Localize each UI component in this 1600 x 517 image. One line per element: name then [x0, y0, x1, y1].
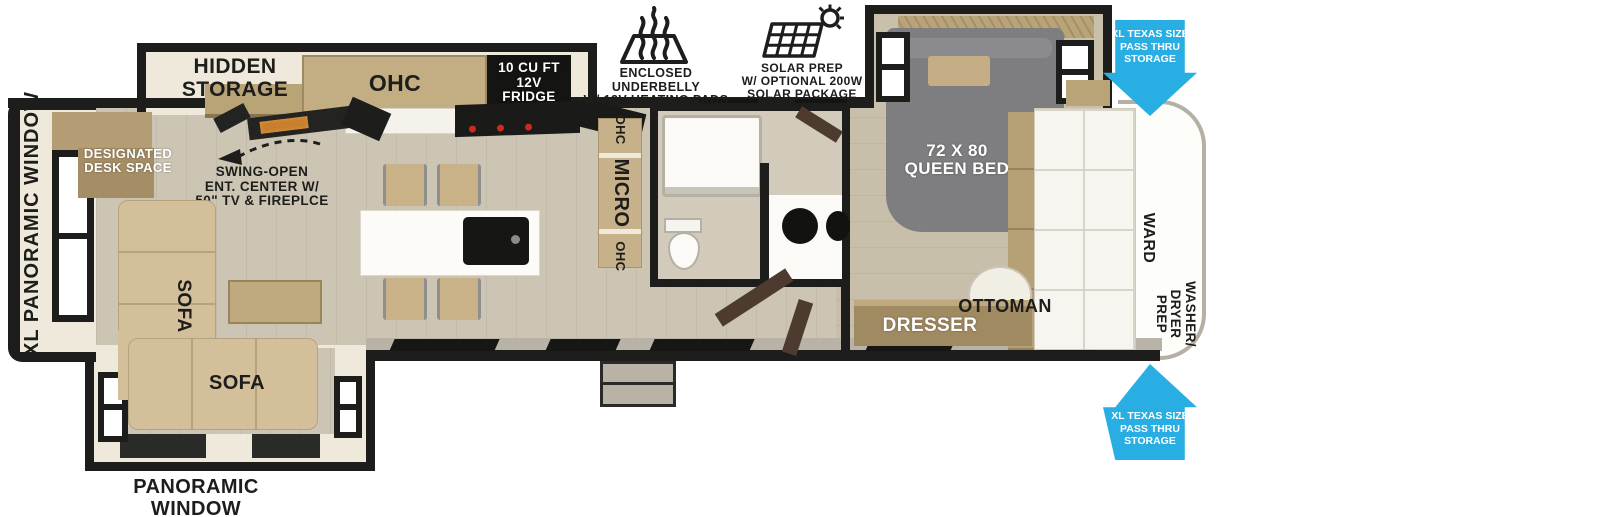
heating-pads-icon	[612, 6, 696, 68]
desk-label: DESIGNATED DESK SPACE	[68, 147, 188, 175]
micro-label: MICRO	[609, 159, 631, 228]
micro-strip-label: OHC MICRO OHC	[598, 118, 642, 268]
cooktop	[455, 101, 580, 137]
bedroom-partition-wall	[841, 283, 850, 353]
stool	[383, 164, 427, 206]
hidden-storage-label: HIDDEN STORAGE	[155, 56, 315, 101]
ohc-upper-label: OHC	[613, 115, 627, 145]
shower	[662, 115, 762, 197]
pass-thru-label: XL TEXAS SIZE	[1103, 28, 1197, 41]
underbelly-label: ENCLOSED UNDERBELLY W/ 12V HEATING PADS	[576, 67, 736, 108]
burner-knob	[525, 123, 532, 130]
vanity-sink	[782, 208, 818, 244]
window-slot	[545, 339, 620, 351]
vanity-sink	[826, 211, 850, 241]
sofa-label: SOFA	[171, 261, 193, 351]
queen-bed-label: 72 X 80 QUEEN BED	[897, 142, 1017, 179]
solar-prep-label: SOLAR PREP W/ OPTIONAL 200W SOLAR PACKAG…	[722, 62, 882, 102]
bedside-shelf	[1066, 80, 1110, 106]
entry-steps	[600, 361, 676, 407]
pass-thru-label: PASS THRU	[1103, 41, 1197, 54]
pass-thru-label: PASS THRU	[1103, 423, 1197, 436]
bed-cushion	[928, 56, 990, 86]
stool	[383, 278, 427, 320]
shower-threshold	[665, 187, 759, 194]
ottoman-label: OTTOMAN	[940, 297, 1070, 316]
window-slot	[649, 339, 754, 351]
toilet	[668, 232, 700, 270]
pillows	[898, 38, 1052, 58]
dresser-label: DRESSER	[870, 316, 990, 337]
burner-knob	[497, 124, 504, 131]
kitchen-island	[360, 210, 540, 276]
faucet	[511, 235, 520, 244]
sofa-seam	[119, 251, 215, 253]
sill-gap	[206, 434, 252, 458]
sofa-label: SOFA	[177, 373, 297, 395]
sink	[463, 217, 529, 265]
fireplace	[260, 116, 309, 134]
window	[334, 376, 362, 438]
pass-thru-label: XL TEXAS SIZE	[1103, 410, 1197, 423]
panoramic-window-sill	[120, 434, 320, 458]
coffee-table	[228, 280, 322, 324]
sofa-seam	[119, 303, 215, 305]
bath-divider-wall	[760, 163, 769, 279]
bottom-wall	[366, 350, 1160, 361]
stool	[437, 278, 481, 320]
toilet-tank	[664, 218, 702, 233]
burner-knob	[469, 125, 476, 132]
washer-dryer-label: WASHER/ DRYER PREP	[1139, 274, 1197, 354]
vanity	[769, 195, 842, 279]
stool	[437, 164, 481, 206]
ohc-lower-label: OHC	[613, 241, 627, 271]
desk-shelf	[52, 112, 152, 150]
pass-thru-arrow-up-icon: XL TEXAS SIZE PASS THRU STORAGE	[1103, 364, 1197, 460]
panoramic-window-label: PANORAMIC WINDOW	[116, 477, 276, 517]
xl-panoramic-window-label: XL PANORAMIC WINDOW	[22, 106, 50, 356]
step-divider	[603, 382, 673, 385]
floorplan-canvas: XL PANORAMIC WINDOW HIDDEN STORAGE OHC 1…	[0, 0, 1600, 517]
window-slot	[389, 339, 499, 351]
pass-thru-label: STORAGE	[1103, 53, 1197, 66]
ohc-label: OHC	[345, 71, 445, 96]
wardrobe-label: WARD	[1135, 198, 1157, 278]
fridge-label: 10 CU FT 12V FRIDGE	[489, 61, 569, 105]
pass-thru-label: STORAGE	[1103, 435, 1197, 448]
solar-prep-icon	[756, 4, 846, 62]
